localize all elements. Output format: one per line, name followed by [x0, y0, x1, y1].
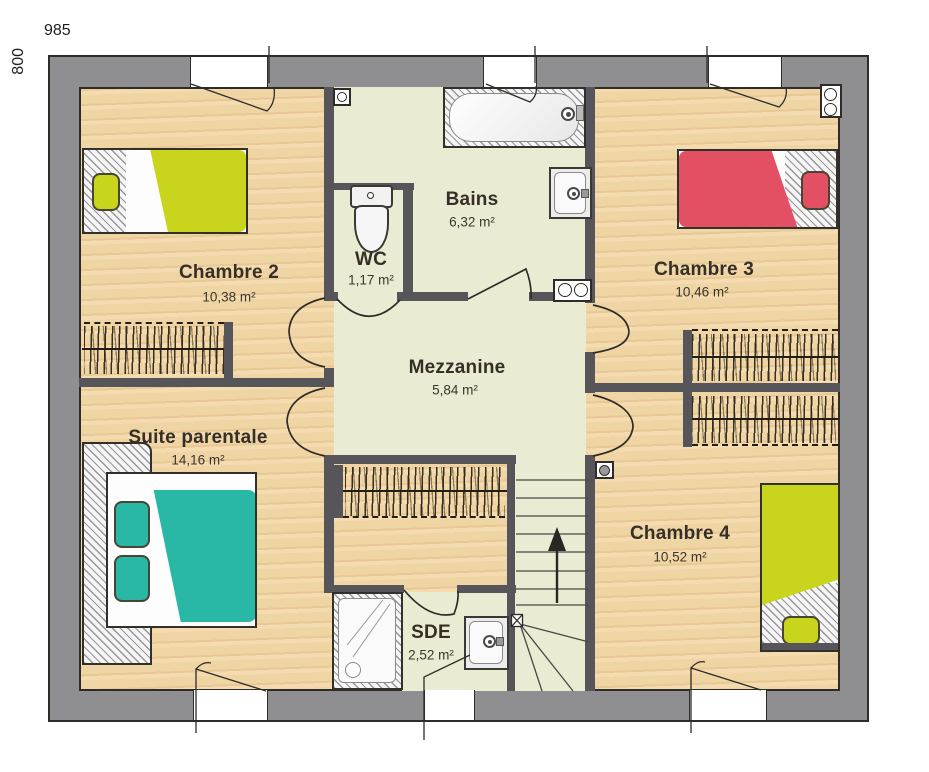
sink-faucet-dot: [572, 192, 576, 196]
toilet-button: [367, 192, 374, 199]
vent-circle: [599, 465, 610, 476]
bed-blanket: [134, 490, 257, 622]
wardrobe-rail: [82, 348, 226, 350]
floor-plan: 985 800: [0, 0, 929, 772]
bed-pillow: [782, 616, 820, 645]
window: [424, 690, 475, 722]
wardrobe-rail: [343, 490, 507, 492]
room-area-chambre4: 10,52 m²: [653, 550, 706, 565]
room-label-wc: WC: [355, 249, 387, 271]
room-area-mezzanine: 5,84 m²: [432, 383, 478, 398]
shower-drain-icon: [345, 662, 361, 678]
room-label-suite: Suite parentale: [128, 427, 267, 449]
sde-wall: [457, 585, 516, 593]
wardrobe-rail: [690, 356, 838, 358]
wardrobe-rail: [690, 418, 838, 420]
wc-wall: [403, 188, 413, 294]
double-socket-icon: [553, 279, 592, 302]
interior-wall: [324, 455, 516, 464]
shower: [332, 592, 403, 690]
interior-wall: [585, 455, 595, 691]
wardrobe-open-side: [84, 322, 224, 324]
single-bed-yellow: [82, 148, 248, 234]
socket-circle: [824, 88, 837, 101]
room-label-sde: SDE: [411, 622, 451, 644]
bed-blanket: [679, 151, 801, 227]
bathtub-faucet-dot: [566, 112, 571, 117]
bathtub-basin: [449, 93, 579, 142]
interior-wall: [324, 455, 334, 593]
room-area-chambre2: 10,38 m²: [202, 290, 255, 305]
bathtub: [443, 87, 586, 148]
window: [483, 55, 537, 87]
room-area-suite: 14,16 m²: [171, 453, 224, 468]
room-label-chambre4: Chambre 4: [630, 523, 730, 545]
wardrobe-chambre2: [84, 326, 224, 374]
bathtub-spout: [576, 105, 584, 121]
vent-circle: [337, 92, 347, 102]
single-bed-yellow-vertical: [760, 483, 840, 652]
window: [193, 690, 268, 722]
sink-knob: [496, 637, 504, 646]
window: [689, 690, 767, 722]
room-label-mezzanine: Mezzanine: [409, 357, 506, 379]
sink-faucet-dot: [488, 640, 492, 644]
room-area-chambre3: 10,46 m²: [675, 285, 728, 300]
vent-icon: [333, 88, 351, 106]
bed-blanket: [120, 150, 246, 232]
bed-footer: [762, 643, 838, 650]
dimension-width-label: 985: [44, 22, 71, 40]
socket-circle: [574, 283, 588, 297]
vent-icon: [595, 461, 614, 479]
bed-pillow: [114, 555, 150, 602]
socket-circle: [824, 103, 837, 116]
sink-knob: [581, 189, 589, 198]
double-socket-icon: [820, 84, 842, 118]
bed-pillow: [801, 171, 830, 210]
room-label-chambre2: Chambre 2: [179, 262, 279, 284]
socket-circle: [558, 283, 572, 297]
wardrobe-end: [334, 465, 343, 518]
room-area-wc: 1,17 m²: [348, 273, 394, 288]
room-area-sde: 2,52 m²: [408, 648, 454, 663]
room-area-bains: 6,32 m²: [449, 215, 495, 230]
wardrobe-open-side: [343, 516, 505, 518]
sink-sde: [464, 616, 509, 670]
wardrobe-open-side: [692, 329, 838, 331]
interior-wall: [324, 292, 338, 301]
single-bed-red: [677, 149, 838, 229]
double-bed-teal: [106, 472, 257, 628]
wardrobe-open-side: [692, 444, 838, 446]
room-label-bains: Bains: [446, 189, 499, 211]
stairwell-floor: [514, 462, 591, 691]
interior-wall: [594, 383, 840, 392]
wardrobe-end: [683, 330, 692, 385]
dimension-height-label: 800: [10, 48, 28, 75]
wardrobe-end: [683, 392, 692, 447]
bed-pillow: [114, 501, 150, 548]
interior-wall: [79, 378, 334, 387]
interior-wall: [324, 87, 334, 298]
sink-bains: [549, 167, 592, 219]
wardrobe-end: [224, 322, 233, 378]
bed-pillow: [92, 173, 120, 211]
window: [708, 55, 782, 87]
interior-wall: [397, 292, 468, 301]
window: [190, 55, 268, 87]
room-label-chambre3: Chambre 3: [654, 259, 754, 281]
